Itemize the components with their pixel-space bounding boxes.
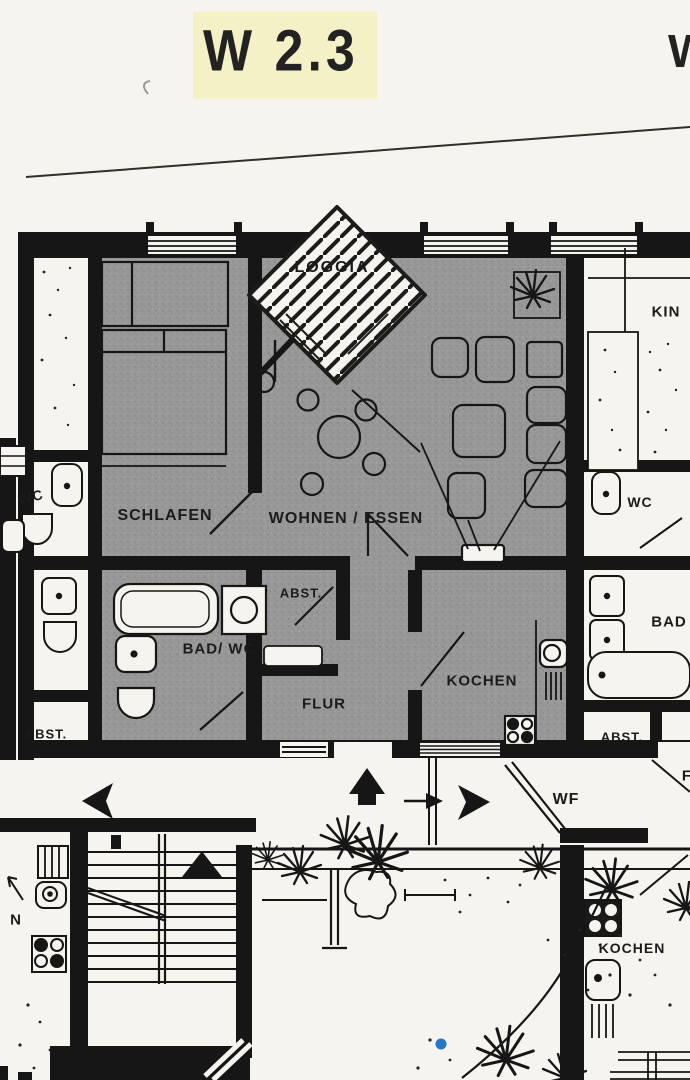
neighbor-label-right-wc: WC	[627, 495, 652, 509]
neighbor-label-right-kinder-partial: KIN	[652, 305, 681, 320]
bidet	[118, 688, 154, 718]
blue-marker-dot	[436, 1039, 447, 1050]
room-label-bad-wc: BAD/ WC	[183, 642, 256, 657]
neighbor-label-right-flur-partial: F	[682, 769, 690, 784]
room-label-schlafen: SCHLAFEN	[117, 508, 212, 524]
neighbor-label-right-abst: ABST.	[601, 731, 644, 744]
label-wf: WF	[553, 792, 580, 808]
unit-title: W 2.3	[193, 11, 377, 98]
neighbor-label-bottom-right-kochen: KOCHEN	[599, 941, 666, 955]
neighbor-label-left-kochen-partial: N	[10, 913, 22, 928]
room-label-abst: ABST.	[280, 587, 323, 600]
floor-plan-drawing	[0, 0, 690, 1080]
room-label-kochen: KOCHEN	[446, 674, 517, 689]
neighbor-label-left-abst: ABST.	[25, 728, 68, 741]
room-label-flur: FLUR	[302, 697, 346, 712]
room-label-wohnen-essen: WOHNEN / ESSEN	[269, 511, 423, 527]
room-label-loggia: LOGGIA	[294, 260, 369, 276]
adjacent-unit-title-partial: W	[668, 24, 690, 78]
neighbor-label-right-bad-partial: BAD	[651, 615, 687, 630]
floor-plan-page: W 2.3 W LOGGIA SCHLAFEN WOHNEN / ESSEN A…	[0, 0, 690, 1080]
